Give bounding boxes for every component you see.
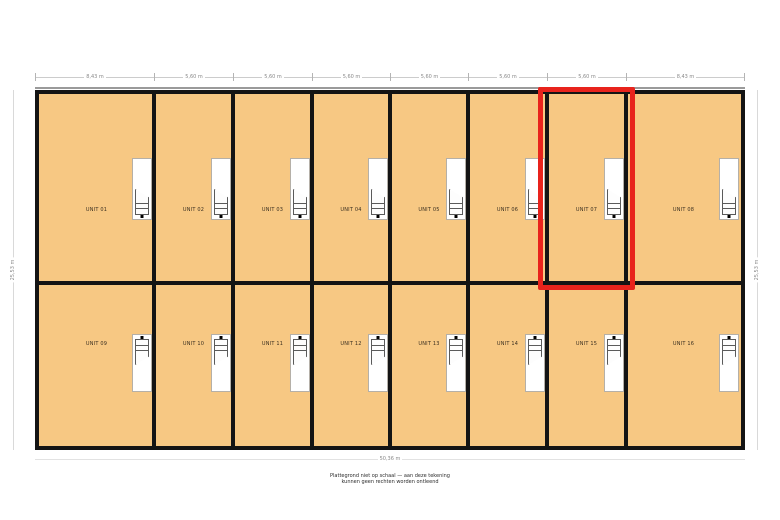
door-leaf: [135, 189, 149, 215]
door-leaf: [293, 339, 307, 365]
dimension-segment: 5,60 m: [312, 73, 390, 81]
selected-unit-highlight: [538, 87, 635, 290]
door-icon: [211, 158, 231, 220]
door-icon: [132, 334, 152, 392]
door-hinge: [534, 336, 537, 339]
dimension-label: 5,60 m: [264, 74, 282, 80]
footnote-line2: kunnen geen rechten worden ontleend: [0, 479, 780, 485]
door-icon: [211, 334, 231, 392]
dimension-label: 5,60 m: [421, 74, 439, 80]
dimension-segment: 5,60 m: [233, 73, 312, 81]
dimension-segment: 5,60 m: [468, 73, 547, 81]
dimension-label-bottom: 50,36 m: [380, 456, 401, 462]
dimension-label: 5,60 m: [185, 74, 203, 80]
dimension-label: 8,43 m: [86, 74, 104, 80]
door-icon: [368, 158, 388, 220]
footnote: Plattegrond niet op schaal — aan deze te…: [0, 473, 780, 485]
floorplan-viewer: 8,43 m5,60 m5,60 m5,60 m5,60 m5,60 m5,60…: [0, 0, 780, 520]
dimension-label: 8,43 m: [677, 74, 695, 80]
door-hinge: [613, 336, 616, 339]
door-leaf: [371, 339, 385, 365]
door-leaf: [528, 339, 542, 365]
dimension-line-left: 25,53 m: [8, 90, 18, 450]
dimension-label-left: 25,53 m: [10, 258, 16, 283]
dimension-segment: 8,43 m: [35, 73, 154, 81]
dimension-segment: 5,60 m: [154, 73, 233, 81]
door-hinge: [220, 215, 223, 218]
door-hinge: [299, 336, 302, 339]
dimension-line-bottom: 50,36 m: [35, 455, 745, 463]
door-hinge: [141, 215, 144, 218]
door-icon: [446, 334, 466, 392]
dimension-label: 5,60 m: [578, 74, 596, 80]
door-leaf: [449, 189, 463, 215]
dimension-segment: 8,43 m: [626, 73, 745, 81]
dimension-label: 5,60 m: [499, 74, 517, 80]
door-hinge: [377, 215, 380, 218]
door-icon: [719, 334, 739, 392]
dimension-segment: 5,60 m: [547, 73, 626, 81]
door-leaf: [607, 339, 621, 365]
door-leaf: [371, 189, 385, 215]
door-hinge: [220, 336, 223, 339]
door-leaf: [722, 189, 736, 215]
door-icon: [132, 158, 152, 220]
door-hinge: [377, 336, 380, 339]
door-leaf: [449, 339, 463, 365]
door-icon: [368, 334, 388, 392]
door-hinge: [455, 336, 458, 339]
door-hinge: [141, 336, 144, 339]
door-icon: [525, 334, 545, 392]
door-icon: [290, 334, 310, 392]
dimension-line-right: 25,53 m: [752, 90, 762, 450]
door-leaf: [293, 189, 307, 215]
door-hinge: [534, 215, 537, 218]
dimension-line-top: 8,43 m5,60 m5,60 m5,60 m5,60 m5,60 m5,60…: [35, 73, 745, 81]
door-hinge: [728, 215, 731, 218]
door-leaf: [722, 339, 736, 365]
building-outline: UNIT 01UNIT 02UNIT 03UNIT 04UNIT 05UNIT …: [35, 90, 745, 450]
door-icon: [719, 158, 739, 220]
door-hinge: [728, 336, 731, 339]
dimension-label: 5,60 m: [343, 74, 361, 80]
door-leaf: [214, 339, 228, 365]
door-hinge: [299, 215, 302, 218]
door-icon: [604, 334, 624, 392]
door-icon: [290, 158, 310, 220]
door-leaf: [214, 189, 228, 215]
door-leaf: [135, 339, 149, 365]
dimension-segment: 5,60 m: [390, 73, 468, 81]
door-icon: [446, 158, 466, 220]
door-hinge: [455, 215, 458, 218]
dimension-label-right: 25,53 m: [754, 258, 760, 283]
